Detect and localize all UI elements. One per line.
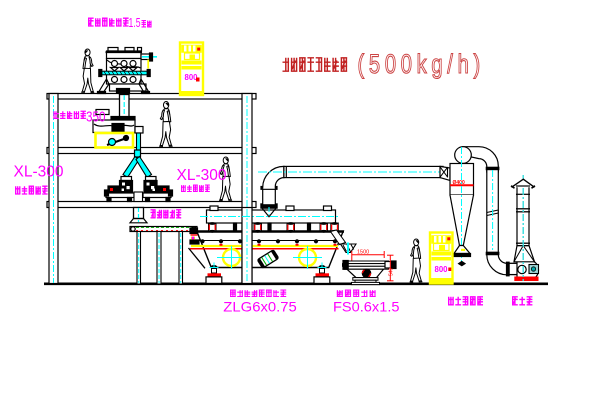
svg-text:Ø400: Ø400 (453, 180, 465, 186)
svg-text:XL-300: XL-300 (14, 164, 64, 181)
svg-text:1.5: 1.5 (129, 15, 141, 30)
svg-text:FS0.6x1.5: FS0.6x1.5 (333, 299, 400, 315)
svg-text:ZLG6x0.75: ZLG6x0.75 (223, 299, 297, 315)
svg-text:350: 350 (86, 109, 106, 126)
svg-text:XL-300: XL-300 (177, 167, 227, 184)
svg-text:800: 800 (435, 265, 449, 274)
svg-text:(500kg/h): (500kg/h) (358, 49, 485, 78)
svg-text:540: 540 (389, 267, 395, 276)
svg-text:1500: 1500 (357, 250, 369, 256)
